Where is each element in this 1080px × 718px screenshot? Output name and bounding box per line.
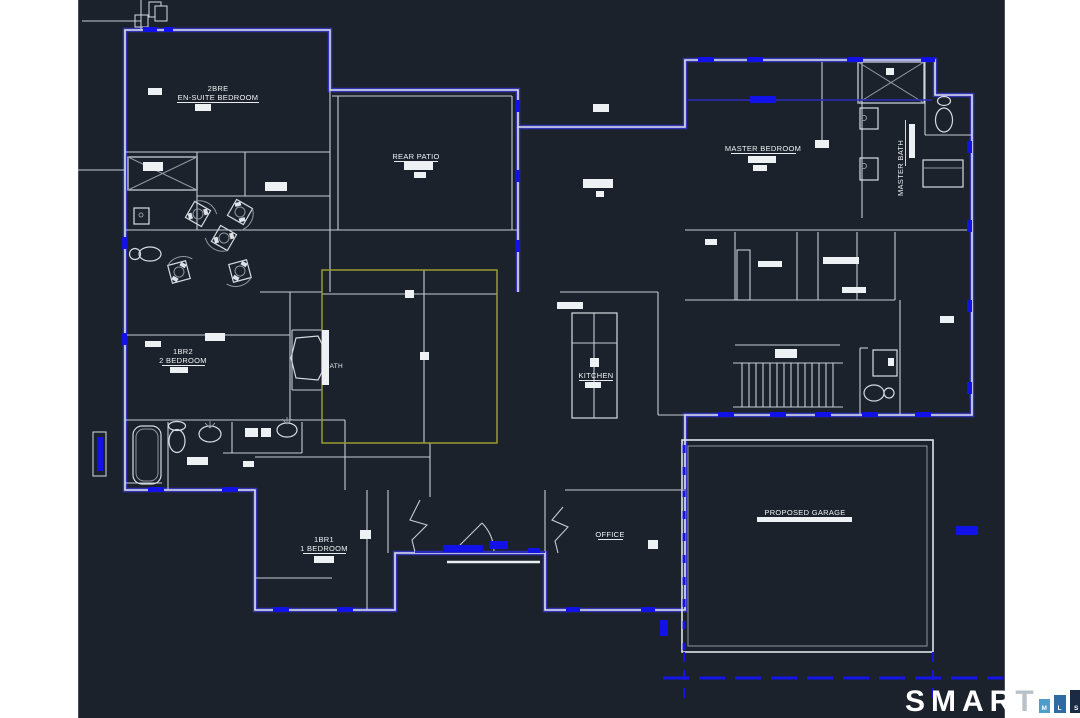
logo-wordmark: SMAR — [905, 688, 1017, 717]
room-label-master-bath: MASTER BATH — [896, 140, 905, 196]
logo-square-l: L — [1054, 695, 1066, 713]
floorplan-page: 2BRE EN-SUITE BEDROOM REAR PATIO MASTER … — [0, 0, 1080, 718]
room-label-bedroom2-line1: 1BR2 — [173, 347, 193, 356]
logo-wordmark-t: T — [1015, 688, 1033, 717]
room-label-bedroom1-line2: 1 BEDROOM — [300, 544, 348, 553]
room-label-garage: PROPOSED GARAGE — [764, 508, 845, 517]
floorplan-drawing: 2BRE EN-SUITE BEDROOM REAR PATIO MASTER … — [0, 0, 1080, 718]
room-label-rear-patio: REAR PATIO — [392, 152, 439, 161]
room-label-ensuite-line2: EN-SUITE BEDROOM — [178, 93, 259, 102]
logo-mls-squares: M L S — [1039, 690, 1080, 713]
room-label-kitchen: KITCHEN — [578, 371, 613, 380]
smartmls-logo: SMAR T M L S — [905, 676, 1080, 716]
room-label-ensuite-line1: 2BRE — [208, 84, 229, 93]
logo-square-m: M — [1039, 699, 1050, 713]
room-label-master-bedroom: MASTER BEDROOM — [725, 144, 801, 153]
room-label-bath: BATH — [325, 363, 343, 370]
room-label-bedroom1-line1: 1BR1 — [314, 535, 334, 544]
room-label-office: OFFICE — [595, 530, 624, 539]
room-label-bedroom2-line2: 2 BEDROOM — [159, 356, 207, 365]
logo-square-s: S — [1070, 690, 1080, 713]
